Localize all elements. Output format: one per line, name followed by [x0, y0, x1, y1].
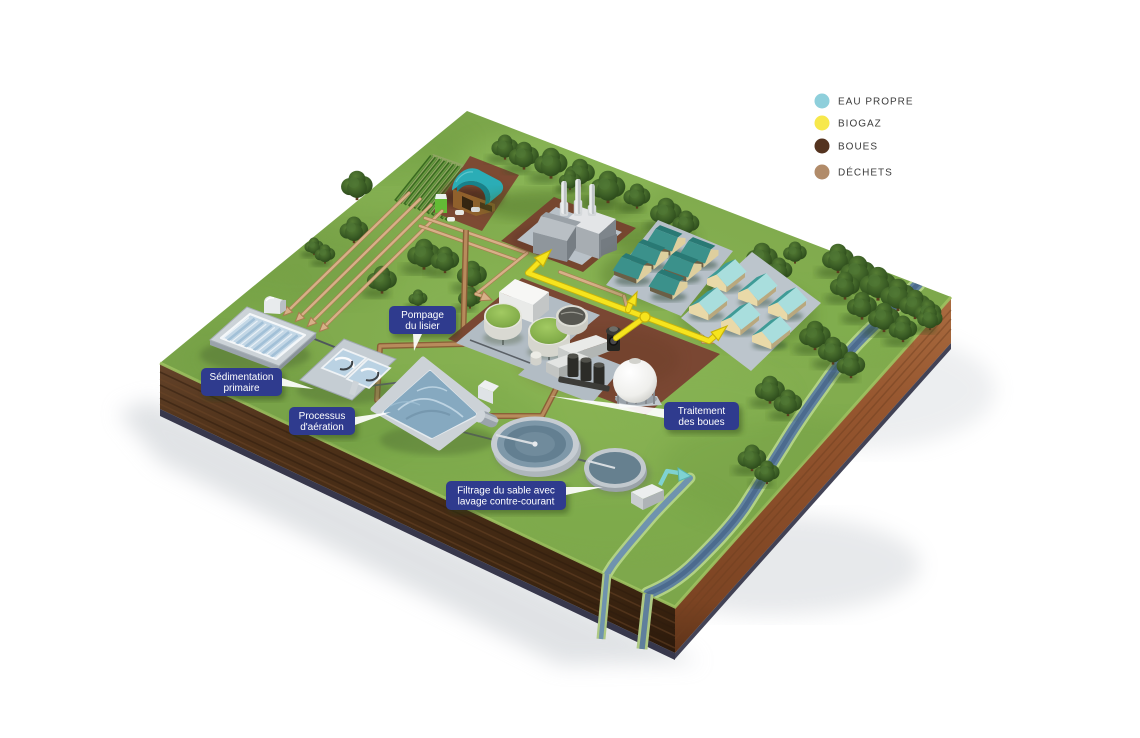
svg-text:lavage contre-courant: lavage contre-courant	[458, 497, 555, 508]
svg-text:Sédimentation: Sédimentation	[210, 372, 274, 383]
svg-text:du lisier: du lisier	[405, 321, 440, 332]
svg-text:EAU PROPRE: EAU PROPRE	[838, 97, 914, 108]
svg-text:BIOGAZ: BIOGAZ	[838, 119, 882, 130]
svg-text:Traitement: Traitement	[678, 406, 726, 417]
svg-text:Processus: Processus	[299, 411, 346, 422]
svg-text:Pompage: Pompage	[401, 310, 444, 321]
svg-text:BOUES: BOUES	[838, 142, 878, 153]
svg-text:primaire: primaire	[223, 383, 260, 394]
svg-text:des boues: des boues	[678, 417, 724, 428]
svg-text:d'aération: d'aération	[300, 422, 344, 433]
svg-text:Filtrage du sable avec: Filtrage du sable avec	[457, 486, 555, 497]
svg-text:DÉCHETS: DÉCHETS	[838, 166, 893, 179]
